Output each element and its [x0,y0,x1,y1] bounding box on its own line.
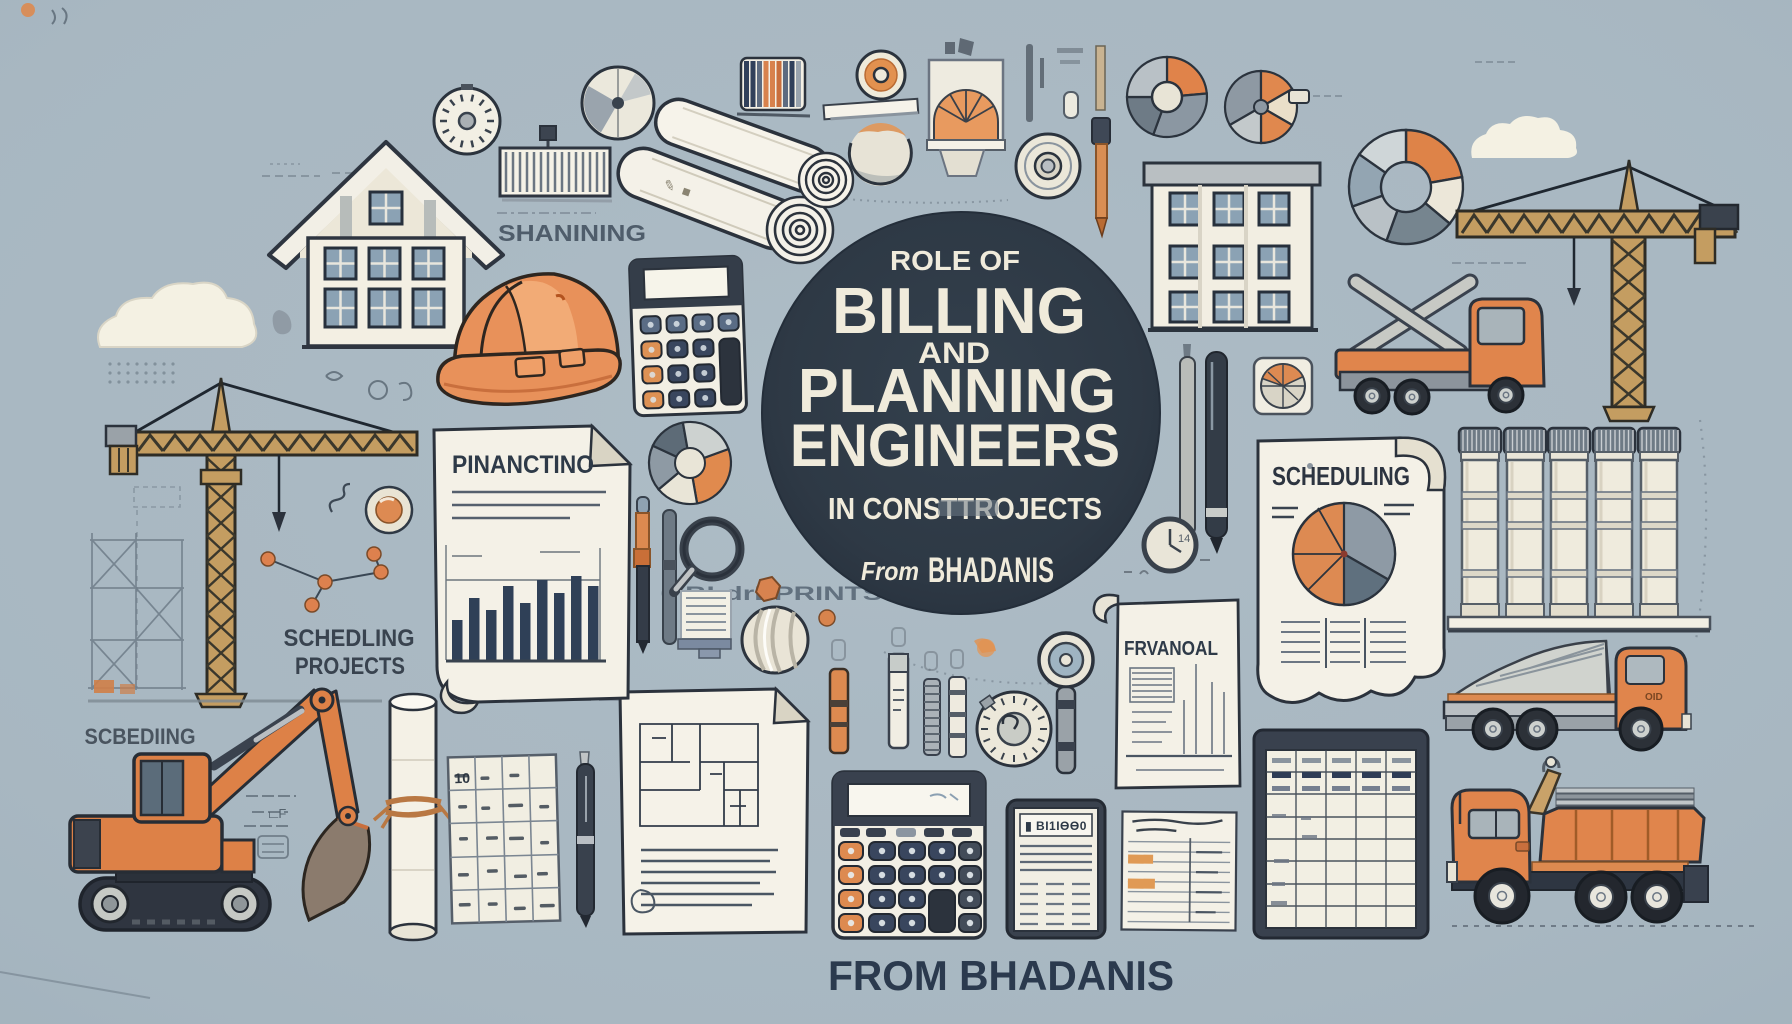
svg-text:BHADANIS: BHADANIS [928,551,1054,590]
svg-text:ட﻿F: ட﻿F [268,806,286,821]
svg-text:14: 14 [1178,533,1190,545]
svg-text:▮ BI1IƟƟ0: ▮ BI1IƟƟ0 [1025,819,1087,833]
svg-text:ROLE OF: ROLE OF [890,245,1020,276]
svg-text:SCBEDIING: SCBEDIING [85,724,196,749]
svg-text:FROM BHADANIS: FROM BHADANIS [828,952,1174,999]
svg-text:SCHEDULING: SCHEDULING [1272,461,1410,491]
svg-text:OID: OID [1645,692,1663,703]
svg-text:PINANCTINO: PINANCTINO [452,451,594,479]
svg-text:ENGINEERS: ENGINEERS [790,412,1120,479]
svg-text:PROJECTS: PROJECTS [295,653,405,680]
svg-text:From: From [861,556,919,586]
svg-text:SCHEDLING: SCHEDLING [284,625,415,652]
svg-text:FRVANOAL: FRVANOAL [1124,638,1218,660]
svg-text:10: 10 [454,770,470,786]
svg-text:SHANINING: SHANINING [498,220,646,246]
